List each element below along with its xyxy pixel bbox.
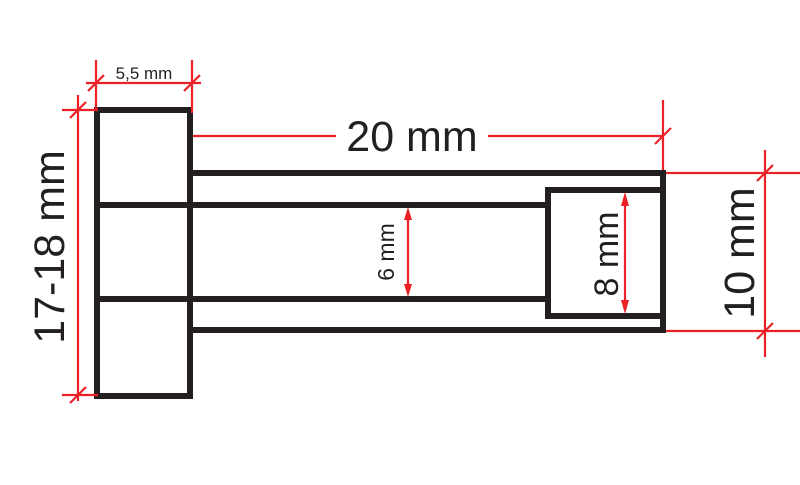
bore-diameter-label: 6 mm [373, 223, 399, 281]
technical-drawing-canvas: 5,5 mm 17-18 mm 20 mm 6 mm 8 mm 10 mm [0, 0, 800, 485]
head-outline [97, 110, 190, 396]
counterbore-diameter-label: 8 mm [588, 212, 626, 297]
counterbore-arrowhead-down-icon [621, 300, 629, 314]
bore-arrowhead-up-icon [404, 207, 412, 220]
head-height-label: 17-18 mm [26, 150, 74, 344]
technical-drawing-page: 5,5 mm 17-18 mm 20 mm 6 mm 8 mm 10 mm [0, 0, 800, 485]
counterbore-arrowhead-up-icon [621, 192, 629, 206]
outer-diameter-label: 10 mm [716, 187, 764, 318]
shaft-length-label: 20 mm [346, 113, 477, 161]
bore-arrowhead-down-icon [404, 284, 412, 297]
head-width-label: 5,5 mm [116, 64, 173, 83]
